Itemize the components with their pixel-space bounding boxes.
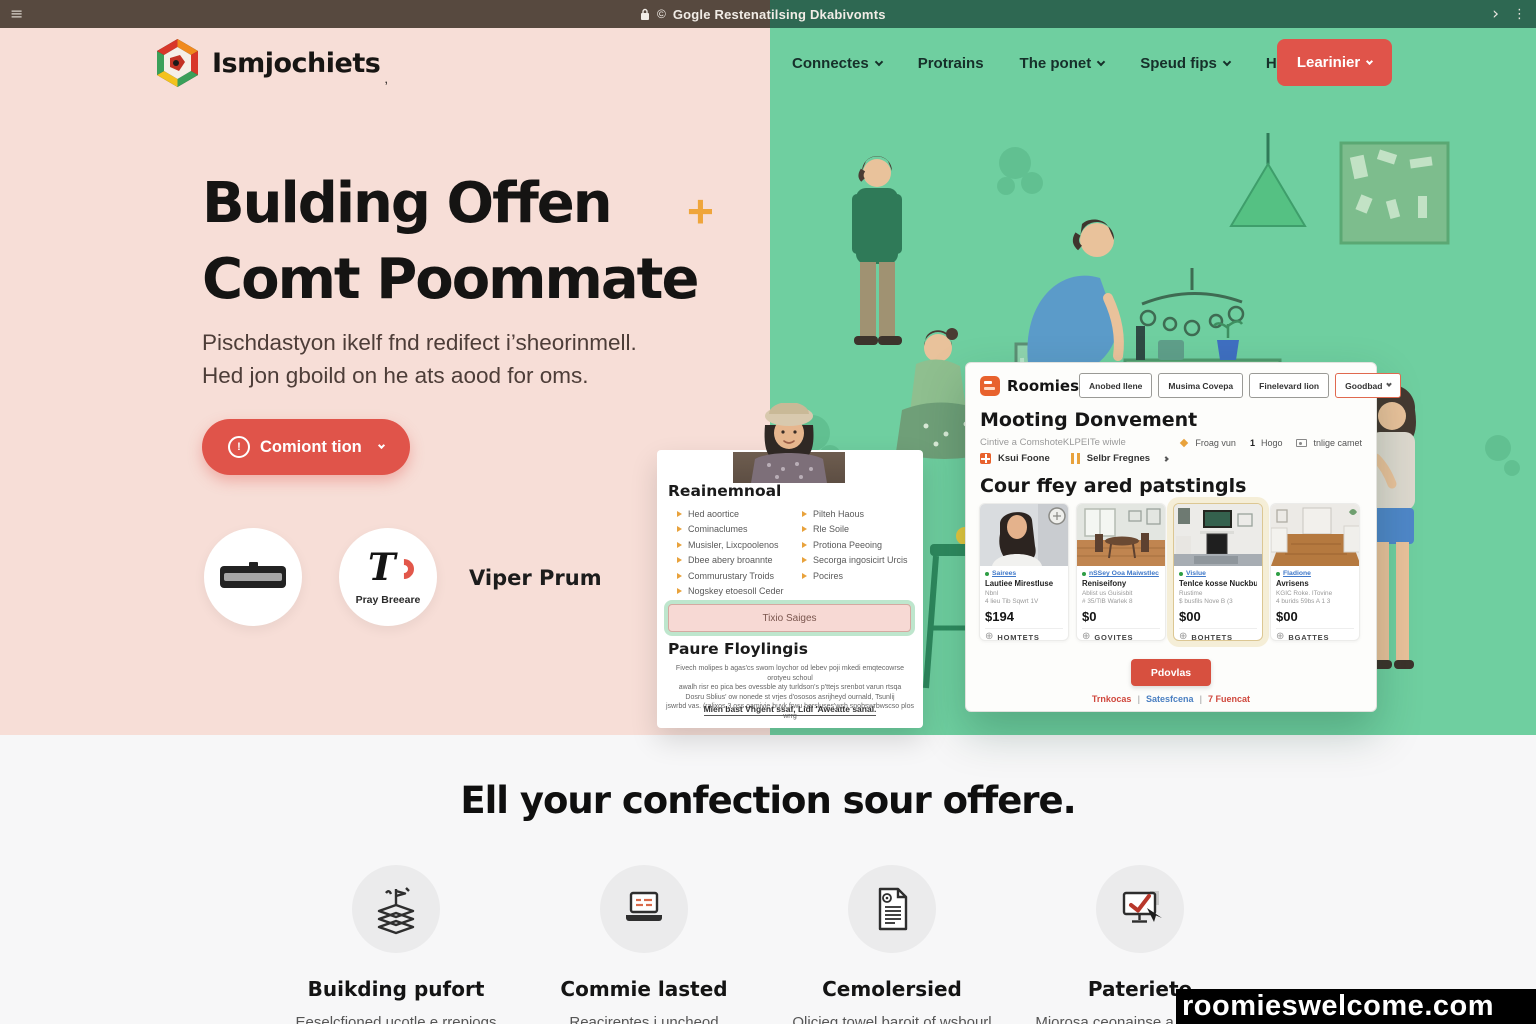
listing-price: $0 (1082, 609, 1160, 624)
listing-footer: GOVITES (1094, 633, 1133, 642)
arrow-bullet-icon (677, 542, 682, 548)
arrow-bullet-icon (677, 511, 682, 517)
circle-plus-icon: ⊕ (1082, 632, 1090, 641)
circle-plus-icon: ⊕ (1179, 632, 1187, 641)
feature-circle (848, 865, 936, 953)
listings-row: Sairees Lautiee Mirestluse Nbnl 4 lieu T… (979, 503, 1360, 641)
underlined-link[interactable]: Mien bast Vhgent ssaf, Lidl 'Aweatte san… (704, 704, 877, 716)
profile-card-subheading: Paure Floylingis (668, 640, 808, 658)
app-filters: Ksui Foone Selbr Fregnes (980, 453, 1168, 464)
list-item: Pilteh Haous (802, 506, 917, 522)
arrow-bullet-icon (802, 557, 807, 563)
list-item: Secorga ingosicirt Urcis (802, 553, 917, 569)
app-nav-button-2[interactable]: Musima Covepa (1158, 373, 1243, 398)
arrow-bullet-icon (802, 526, 807, 532)
play-store-badge[interactable]: T Pray Breeare (339, 528, 437, 626)
store-badge (204, 528, 302, 626)
listing-card-3[interactable]: Vislue Tenlce kosse Nuckbung... Rustime … (1173, 503, 1263, 641)
listing-footer: BGATTES (1288, 633, 1329, 642)
app-nav: Anobed Ilene Musima Covepa Finelevard li… (1079, 373, 1401, 398)
site-logo[interactable]: Ismjochiets , (155, 38, 388, 88)
arrow-bullet-icon (677, 573, 682, 579)
nav-item-protrains[interactable]: Protrains (918, 55, 984, 72)
listing-photo-dining (1077, 504, 1166, 566)
feature-circle (352, 865, 440, 953)
feature-commie-lasted: Commie lasted Reacireptes i uncheod (520, 865, 768, 1024)
pdovlas-button[interactable]: Pdovlas (1131, 659, 1211, 686)
stacked-trays-icon (369, 882, 423, 936)
list-item: Dbee abery broannte (677, 553, 802, 569)
status-dot (985, 572, 989, 576)
roomies-brand: Roomies (1007, 377, 1079, 395)
address-bar[interactable]: © Gogle Restenatilsing Dkabivomts (640, 0, 886, 28)
woman-portrait-illustration (733, 403, 845, 483)
status-dot (1179, 572, 1183, 576)
status-dot (1082, 572, 1086, 576)
listing-footer: HOMTETS (997, 633, 1039, 642)
nav-item-speud-fips[interactable]: Speud fips (1140, 55, 1230, 72)
amenities-list-right: Pilteh Haous Rle Soile Protiona Peeoing … (802, 506, 917, 584)
listing-photo-portrait (980, 504, 1069, 566)
url-text: Gogle Restenatilsing Dkabivomts (673, 7, 886, 22)
list-item: Hed aoortice (677, 506, 802, 522)
app-heading: Mooting Donvement (980, 409, 1197, 431)
feature-cemolersied: Cemolersied Olicieg towel baroit of wsbo… (768, 865, 1016, 1024)
status-dot (1276, 572, 1280, 576)
listing-tag[interactable]: Sairees (992, 570, 1016, 577)
diamond-icon (1180, 438, 1188, 446)
arrow-bullet-icon (677, 557, 682, 563)
kebab-menu-icon[interactable]: ⋮ (1513, 7, 1526, 22)
lock-icon (640, 8, 650, 21)
chevron-down-icon (1366, 57, 1373, 64)
profile-card-link: Mien bast Vhgent ssaf, Lidl 'Aweatte san… (657, 704, 923, 714)
nav-item-connectes[interactable]: Connectes (792, 55, 882, 72)
circle-plus-icon: ⊕ (1276, 632, 1284, 641)
list-item: Cominaclumes (677, 522, 802, 538)
hero-title: Bulding Offen Comt Poommate (202, 166, 697, 318)
listing-photo-fireplace (1174, 504, 1263, 566)
list-item: Commurustary Troids (677, 568, 802, 584)
pause-icon (1071, 453, 1080, 464)
list-item: Musisler, Lixcpoolenos (677, 537, 802, 553)
chevron-down-icon (378, 442, 385, 449)
monitor-check-icon (1113, 882, 1167, 936)
hero-cta-button[interactable]: ! Comiont tion (202, 419, 410, 475)
tc-logo-icon: T (360, 549, 416, 591)
barcode-badge-icon (220, 566, 286, 588)
roomies-logo-icon (980, 376, 1000, 396)
listing-photo-livingroom (1271, 504, 1360, 566)
listing-footer: BOHTETS (1191, 633, 1232, 642)
logo-suffix: , (384, 71, 388, 86)
features-heading: Ell your confection sour offere. (0, 779, 1536, 822)
chevron-down-icon (874, 57, 882, 65)
main-nav: Connectes Protrains The ponet Speud fips… (792, 40, 1343, 86)
logo-text: Ismjochiets (212, 48, 380, 79)
chevron-down-icon (1097, 57, 1105, 65)
listing-detail: 4 lieu Tib Sqwrt 1V (985, 598, 1063, 605)
listing-detail: Ablist us Guisisbit (1082, 590, 1160, 597)
laptop-icon (617, 882, 671, 936)
chevron-down-icon (1387, 381, 1393, 387)
listing-card-4[interactable]: Fladione Avrisens KGIC Roke. ITovine 4 b… (1270, 503, 1360, 641)
circle-plus-icon: ⊕ (985, 632, 993, 641)
grid-icon (980, 453, 991, 464)
feature-subtitle: Reacireptes i uncheod (569, 1014, 718, 1024)
app-subheading: Cintive a ComshoteKLPEITe wiwle (980, 437, 1126, 448)
plus-decoration: + (687, 184, 714, 238)
listing-title: Avrisens (1276, 579, 1354, 588)
feature-buikding-pufort: Buikding pufort Eeselcfioned ucotle e rr… (272, 865, 520, 1024)
feature-circle (1096, 865, 1184, 953)
document-icon (865, 882, 919, 936)
feature-subtitle: Eeselcfioned ucotle e rrepiogs (296, 1014, 497, 1024)
list-item: Protiona Peeoing (802, 537, 917, 553)
list-item: Nogskey etoesoll Ceder (677, 584, 802, 600)
filter-selbr-fregnes[interactable]: Selbr Fregnes (1087, 453, 1150, 464)
list-item: Pocires (802, 568, 917, 584)
page: ≡ © Gogle Restenatilsing Dkabivomts › ⋮ (0, 0, 1536, 1024)
listing-detail: KGIC Roke. ITovine (1276, 590, 1354, 597)
link-satesfcena[interactable]: Satesfcena (1146, 694, 1194, 704)
feature-title: Commie lasted (560, 977, 727, 1001)
nav-item-the-ponet[interactable]: The ponet (1020, 55, 1105, 72)
app-nav-button-1[interactable]: Anobed Ilene (1079, 373, 1152, 398)
arrow-bullet-icon (802, 573, 807, 579)
feature-circle (600, 865, 688, 953)
listing-card-1[interactable]: Sairees Lautiee Mirestluse Nbnl 4 lieu T… (979, 503, 1069, 641)
listing-tag[interactable]: Fladione (1283, 570, 1311, 577)
listing-detail: 4 burids 59bs A 1 3 (1276, 598, 1354, 605)
app-nav-dropdown[interactable]: Goodbad (1335, 373, 1401, 398)
listing-title: Reniseifony (1082, 579, 1160, 588)
app-meta: Froag vun 1 Hogo tnlige camet (1181, 438, 1362, 448)
chevron-down-icon (1223, 57, 1231, 65)
chevron-right-icon (1163, 456, 1169, 462)
portrait-photo (733, 403, 845, 483)
info-circle-icon: ! (228, 436, 250, 458)
arrow-bullet-icon (802, 511, 807, 517)
listing-detail: $ busfils Nove B (3 (1179, 598, 1257, 605)
listing-price: $00 (1179, 609, 1257, 624)
arrow-bullet-icon (802, 542, 807, 548)
listing-detail: Rustime (1179, 590, 1257, 597)
listing-title: Tenlce kosse Nuckbung... (1179, 579, 1257, 588)
hamburger-menu-icon[interactable]: ≡ (10, 6, 23, 22)
link-fuencat[interactable]: 7 Fuencat (1208, 694, 1250, 704)
listing-tag[interactable]: Vislue (1186, 570, 1206, 577)
learinier-button[interactable]: Learinier (1277, 39, 1392, 86)
feature-title: Cemolersied (822, 977, 962, 1001)
roomies-app-card: Roomies Anobed Ilene Musima Covepa Finel… (965, 362, 1377, 712)
listing-title: Lautiee Mirestluse (985, 579, 1063, 588)
features-section: Ell your confection sour offere. (0, 735, 1536, 1024)
image-icon (1296, 439, 1307, 447)
link-trnkocas[interactable]: Trnkocas (1092, 694, 1132, 704)
app-footer-links: Trnkocas|Satesfcena|7 Fuencat (966, 694, 1376, 704)
hero-subtitle: Pischdastyon ikelf fnd redifect i’sheori… (202, 326, 637, 392)
app-nav-button-3[interactable]: Finelevard lion (1249, 373, 1329, 398)
arrow-bullet-icon (677, 526, 682, 532)
arrow-bullet-icon (677, 588, 682, 594)
listing-detail: Nbnl (985, 590, 1063, 597)
feature-subtitle: Olicieg towel baroit of wsbourl (792, 1014, 991, 1024)
forward-icon[interactable]: › (1492, 4, 1499, 24)
listing-detail: # 35/TlB Warlek 8 (1082, 598, 1160, 605)
amenities-list-left: Hed aoortice Cominaclumes Musisler, Lixc… (677, 506, 802, 599)
logo-hexagon-icon (155, 38, 200, 88)
listing-tag[interactable]: nSSey Ooa Maiwstlec (1089, 570, 1159, 577)
profile-card: Reainemnoal Hed aoortice Cominaclumes Mu… (657, 450, 923, 728)
profile-card-heading: Reainemnoal (668, 482, 781, 500)
site-info-icon: © (657, 7, 666, 21)
listing-price: $00 (1276, 609, 1354, 624)
listing-card-2[interactable]: nSSey Ooa Maiwstlec Reniseifony Ablist u… (1076, 503, 1166, 641)
watermark: roomieswelcome.com (1176, 989, 1536, 1024)
list-item: Rle Soile (802, 522, 917, 538)
listings-heading: Cour ffey ared patstingls (980, 475, 1246, 497)
listing-price: $194 (985, 609, 1063, 624)
partner-label: Viper Prum (469, 566, 602, 590)
browser-bar: ≡ © Gogle Restenatilsing Dkabivomts › ⋮ (0, 0, 1536, 28)
filter-ksui-foone[interactable]: Ksui Foone (998, 453, 1050, 464)
feature-title: Buikding pufort (308, 977, 485, 1001)
highlighted-input[interactable]: Tixio Saiges (668, 604, 911, 632)
